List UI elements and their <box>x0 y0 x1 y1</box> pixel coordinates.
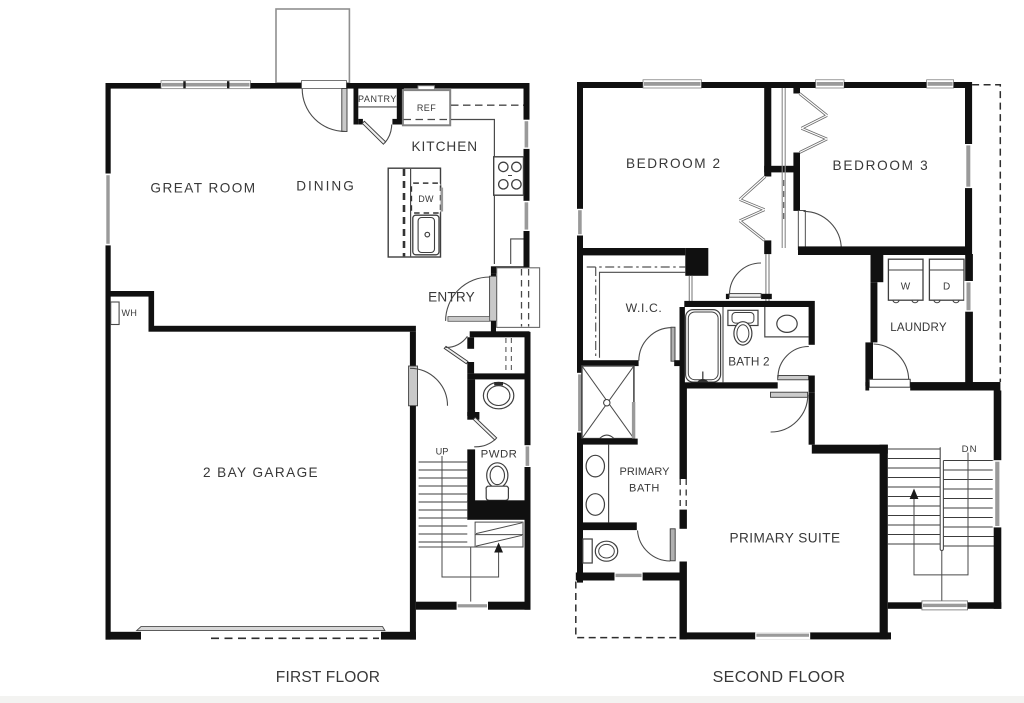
svg-text:ENTRY: ENTRY <box>428 289 475 304</box>
svg-text:BEDROOM 2: BEDROOM 2 <box>626 156 722 171</box>
svg-text:BEDROOM 3: BEDROOM 3 <box>833 158 930 173</box>
svg-text:REF: REF <box>417 103 436 113</box>
svg-text:GREAT ROOM: GREAT ROOM <box>150 181 256 196</box>
svg-text:2 BAY GARAGE: 2 BAY GARAGE <box>203 465 319 480</box>
svg-text:DW: DW <box>418 194 434 204</box>
svg-text:PRIMARY SUITE: PRIMARY SUITE <box>729 530 840 545</box>
svg-text:W: W <box>901 281 911 292</box>
svg-text:UP: UP <box>436 447 449 457</box>
svg-text:FIRST FLOOR: FIRST FLOOR <box>276 669 380 686</box>
svg-text:KITCHEN: KITCHEN <box>411 139 478 154</box>
svg-text:BATH: BATH <box>629 483 660 495</box>
svg-text:W.I.C.: W.I.C. <box>626 301 663 315</box>
svg-text:SECOND FLOOR: SECOND FLOOR <box>713 669 846 686</box>
svg-text:BATH 2: BATH 2 <box>728 354 770 368</box>
svg-text:DINING: DINING <box>296 178 356 193</box>
svg-text:PWDR: PWDR <box>481 449 518 461</box>
svg-text:PANTRY: PANTRY <box>358 94 397 104</box>
svg-text:WH: WH <box>122 308 138 318</box>
svg-text:DN: DN <box>962 444 978 455</box>
svg-text:D: D <box>943 281 950 292</box>
svg-text:PRIMARY: PRIMARY <box>620 466 671 478</box>
svg-text:LAUNDRY: LAUNDRY <box>890 321 947 334</box>
